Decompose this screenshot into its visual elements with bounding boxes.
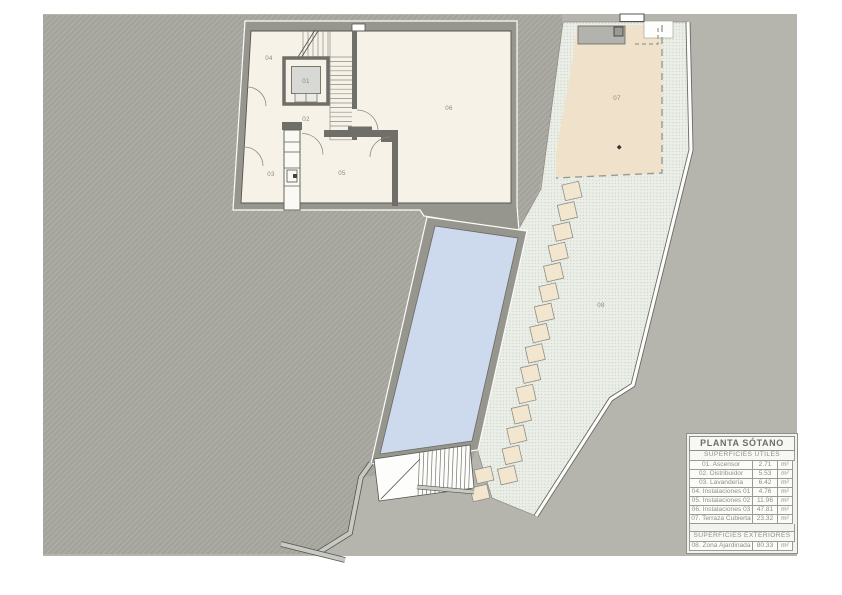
floor-plan-page: { "plan": { "room_labels": { "r01": "01"… <box>0 0 842 595</box>
room-area: 23.32 <box>753 515 778 524</box>
area-unit: m² <box>778 506 793 515</box>
room-area: 2.71 <box>753 461 778 470</box>
legend-table: PLANTA SÓTANO SUPERFICIES ÚTILES 01. Asc… <box>686 433 798 554</box>
legend-spacer <box>689 524 795 532</box>
table-row: 03. Lavandería 6.42 m² <box>689 479 795 488</box>
room-area: 5.53 <box>753 470 778 479</box>
area-unit: m² <box>778 461 793 470</box>
table-row: 02. Distribuidor 5.53 m² <box>689 470 795 479</box>
building-interior-floor <box>241 31 511 203</box>
room-name: 08. Zona Ajardinada <box>689 542 753 551</box>
table-row: 04. Instalaciones 01 4.76 m² <box>689 488 795 497</box>
room-name: 04. Instalaciones 01 <box>689 488 753 497</box>
area-unit: m² <box>778 515 793 524</box>
room-name: 03. Lavandería <box>689 479 753 488</box>
vent-box <box>620 14 644 22</box>
room-area: 6.42 <box>753 479 778 488</box>
room-label-05: 05 <box>338 170 346 177</box>
room-area: 11.96 <box>753 497 778 506</box>
table-row: 01. Ascensor 2.71 m² <box>689 461 795 470</box>
room-area: 80.33 <box>753 542 778 551</box>
room-name: 06. Instalaciones 03 <box>689 506 753 515</box>
area-unit: m² <box>778 488 793 497</box>
room-name: 07. Terraza Cubierta <box>689 515 753 524</box>
table-row: 07. Terraza Cubierta 23.32 m² <box>689 515 795 524</box>
room-label-03: 03 <box>267 171 275 178</box>
room-label-08: 08 <box>597 302 605 309</box>
room-name: 02. Distribuidor <box>689 470 753 479</box>
area-unit: m² <box>778 542 793 551</box>
room-name: 01. Ascensor <box>689 461 753 470</box>
room-label-01: 01 <box>302 78 310 85</box>
table-row: 06. Instalaciones 03 47.81 m² <box>689 506 795 515</box>
legend-section-header-utiles: SUPERFICIES ÚTILES <box>689 451 795 461</box>
room-area: 47.81 <box>753 506 778 515</box>
legend-section-header-exteriores: SUPERFICIES EXTERIORES <box>689 532 795 542</box>
laundry-counter <box>284 130 300 210</box>
table-row: 05. Instalaciones 02 11.96 m² <box>689 497 795 506</box>
table-row: 08. Zona Ajardinada 80.33 m² <box>689 542 795 551</box>
room-label-02: 02 <box>302 116 310 123</box>
room-area: 4.76 <box>753 488 778 497</box>
legend-title: PLANTA SÓTANO <box>689 436 795 451</box>
area-unit: m² <box>778 470 793 479</box>
room-label-04: 04 <box>265 55 273 62</box>
area-unit: m² <box>778 479 793 488</box>
building-basement <box>233 21 519 231</box>
room-name: 05. Instalaciones 02 <box>689 497 753 506</box>
room-label-06: 06 <box>445 105 453 112</box>
area-unit: m² <box>778 497 793 506</box>
room-label-07: 07 <box>613 95 621 102</box>
